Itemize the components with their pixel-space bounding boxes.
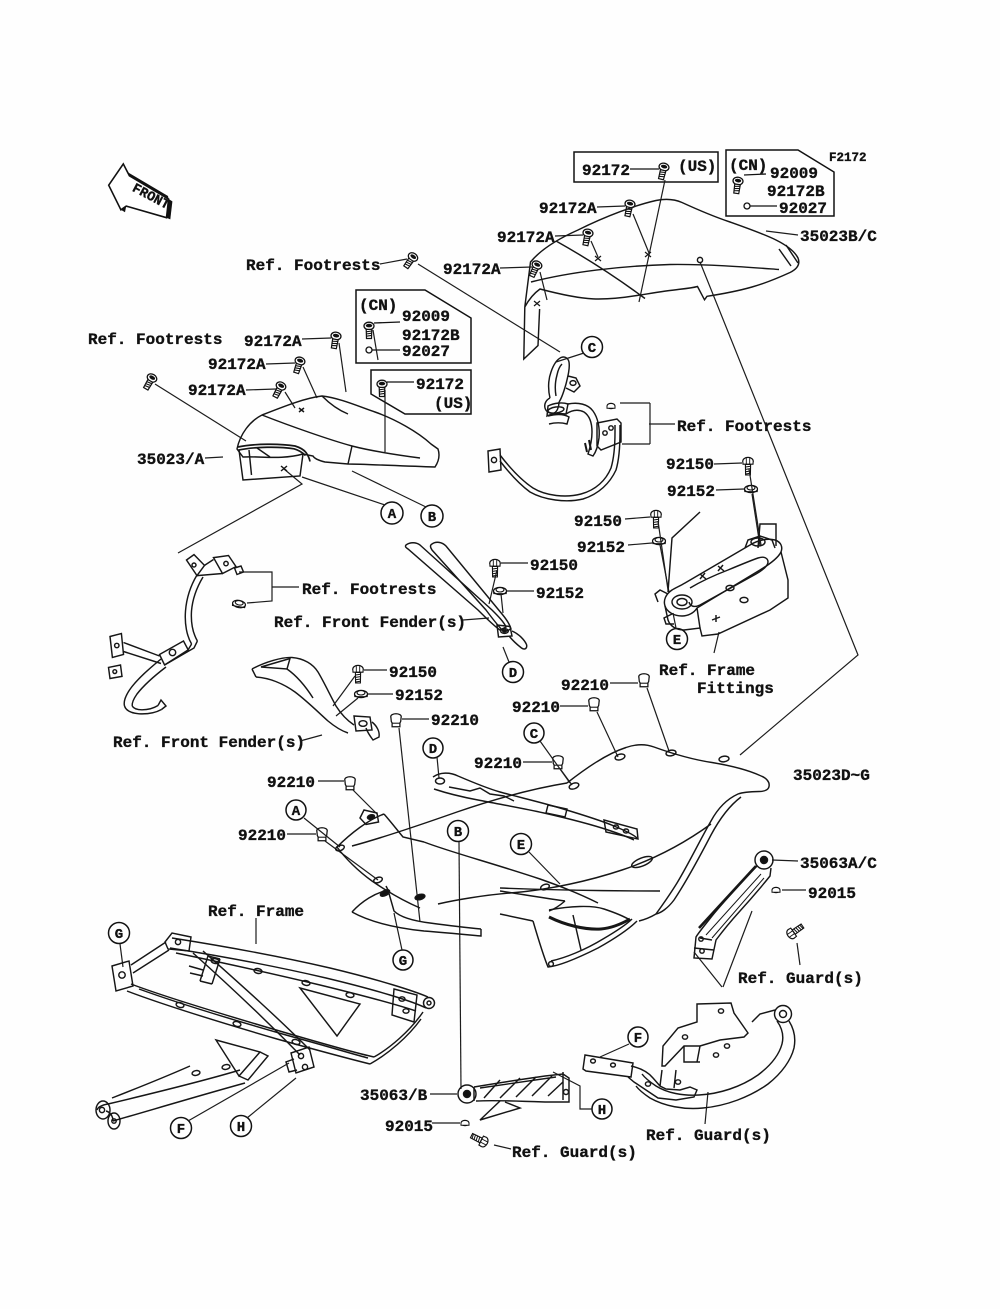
svg-text:Ref. Footrests: Ref. Footrests <box>302 581 436 599</box>
svg-text:92210: 92210 <box>474 755 522 773</box>
svg-text:F2172: F2172 <box>829 151 867 165</box>
svg-text:Ref. Footrests: Ref. Footrests <box>88 331 222 349</box>
svg-text:92015: 92015 <box>808 885 856 903</box>
svg-text:92152: 92152 <box>536 585 584 603</box>
svg-text:Ref. Front Fender(s): Ref. Front Fender(s) <box>274 614 466 632</box>
svg-text:D: D <box>429 742 437 758</box>
svg-text:92009: 92009 <box>402 308 450 326</box>
svg-text:Ref. Footrests: Ref. Footrests <box>246 257 380 275</box>
svg-text:92150: 92150 <box>666 456 714 474</box>
svg-text:F: F <box>634 1031 642 1047</box>
svg-text:G: G <box>115 927 123 943</box>
svg-text:92172A: 92172A <box>208 356 266 374</box>
svg-text:35063/B: 35063/B <box>360 1087 428 1105</box>
svg-text:H: H <box>237 1120 245 1136</box>
svg-text:92150: 92150 <box>389 664 437 682</box>
svg-text:E: E <box>517 838 525 854</box>
svg-text:35023B/C: 35023B/C <box>800 228 877 246</box>
svg-text:92172A: 92172A <box>539 200 597 218</box>
svg-text:H: H <box>598 1103 606 1119</box>
svg-text:35063A/C: 35063A/C <box>800 855 877 873</box>
svg-text:92009: 92009 <box>770 165 818 183</box>
svg-text:B: B <box>428 510 437 526</box>
svg-text:B: B <box>454 825 463 841</box>
svg-text:92015: 92015 <box>385 1118 433 1136</box>
svg-text:92027: 92027 <box>779 200 827 218</box>
svg-text:92150: 92150 <box>574 513 622 531</box>
svg-text:G: G <box>399 954 407 970</box>
svg-text:35023D~G: 35023D~G <box>793 767 870 785</box>
svg-text:92210: 92210 <box>561 677 609 695</box>
svg-text:92172: 92172 <box>582 162 630 180</box>
svg-text:92210: 92210 <box>238 827 286 845</box>
svg-text:92152: 92152 <box>577 539 625 557</box>
svg-text:92027: 92027 <box>402 343 450 361</box>
svg-text:Ref. Guard(s): Ref. Guard(s) <box>646 1127 771 1145</box>
svg-text:92172A: 92172A <box>443 261 501 279</box>
svg-text:(CN): (CN) <box>729 157 767 175</box>
svg-text:A: A <box>292 804 301 820</box>
svg-text:(US): (US) <box>434 395 472 413</box>
svg-text:Fittings: Fittings <box>697 680 774 698</box>
svg-text:(CN): (CN) <box>359 297 397 315</box>
svg-text:35023/A: 35023/A <box>137 451 205 469</box>
svg-text:D: D <box>509 666 517 682</box>
svg-text:92152: 92152 <box>667 483 715 501</box>
svg-text:92172B: 92172B <box>767 183 825 201</box>
svg-text:Ref. Guard(s): Ref. Guard(s) <box>738 970 863 988</box>
svg-text:92172A: 92172A <box>188 382 246 400</box>
svg-text:92172A: 92172A <box>497 229 555 247</box>
svg-text:92210: 92210 <box>512 699 560 717</box>
svg-text:92150: 92150 <box>530 557 578 575</box>
svg-text:E: E <box>673 633 681 649</box>
svg-text:F: F <box>177 1122 185 1138</box>
svg-text:Ref. Guard(s): Ref. Guard(s) <box>512 1144 637 1162</box>
svg-text:92210: 92210 <box>431 712 479 730</box>
svg-text:Ref. Footrests: Ref. Footrests <box>677 418 811 436</box>
svg-text:92152: 92152 <box>395 687 443 705</box>
svg-text:92210: 92210 <box>267 774 315 792</box>
svg-text:C: C <box>588 341 597 357</box>
svg-text:92172A: 92172A <box>244 333 302 351</box>
svg-text:(US): (US) <box>678 158 716 176</box>
svg-text:C: C <box>530 727 539 743</box>
svg-text:Ref. Front Fender(s): Ref. Front Fender(s) <box>113 734 305 752</box>
svg-text:Ref. Frame: Ref. Frame <box>659 662 755 680</box>
svg-text:A: A <box>388 507 397 523</box>
svg-text:92172: 92172 <box>416 376 464 394</box>
